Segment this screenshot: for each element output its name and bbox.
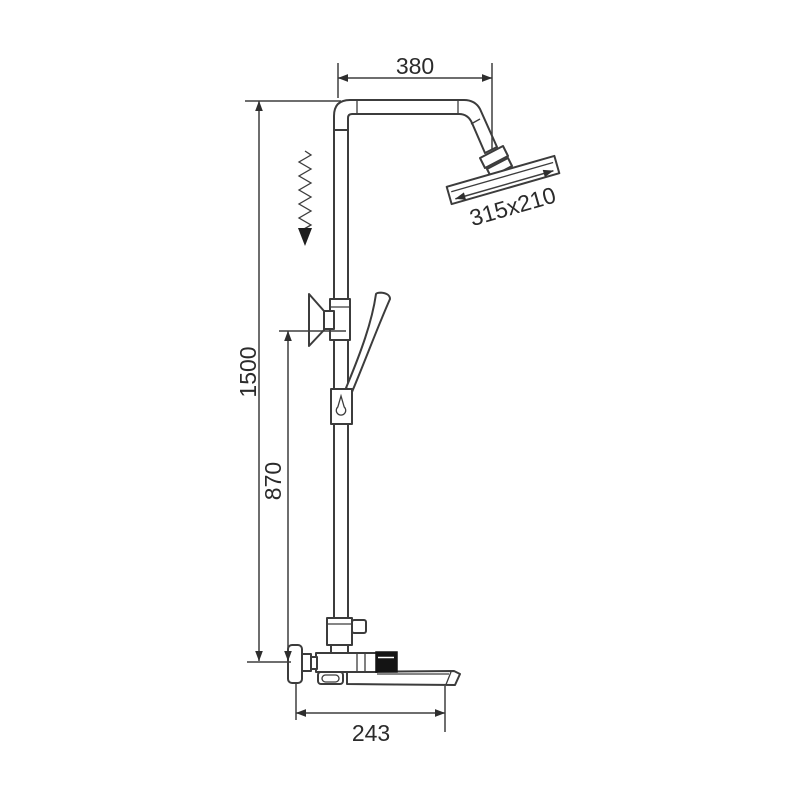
dim-870: 870: [247, 331, 346, 662]
riser-connector-tab: [352, 620, 366, 633]
wall-bracket: [309, 294, 350, 346]
diverter-knob: [376, 652, 397, 672]
spring-zigzag: [299, 151, 311, 229]
riser-pipe: [334, 126, 348, 618]
valve-body: [316, 653, 377, 672]
dim-243: 243: [296, 684, 445, 746]
dim-380-label: 380: [396, 53, 434, 79]
dim-870-label: 870: [260, 462, 286, 500]
down-arrow-icon: [298, 228, 312, 246]
mixer-handle: [288, 645, 302, 683]
slider-body: [331, 389, 352, 424]
dim-1500-label: 1500: [235, 346, 261, 397]
dim-243-label: 243: [352, 720, 390, 746]
top-pipe-and-arm: [334, 100, 497, 153]
shower-set-diagram: 315x210: [0, 0, 800, 800]
handle-stem: [302, 654, 311, 671]
tub-spout: [347, 671, 460, 685]
valve-neck: [331, 645, 348, 653]
riser-connector-block: [327, 618, 352, 645]
mixer-assembly: [288, 618, 460, 685]
drawing-canvas: 315x210: [0, 0, 800, 800]
dimensions: 380 1500 870 243: [235, 53, 492, 746]
slider-holder: [331, 389, 352, 424]
fixture: 315x210: [288, 100, 568, 685]
hand-shower-wand: [346, 293, 390, 392]
bracket-cone: [309, 294, 324, 346]
height-adjust-indicator: [298, 151, 312, 246]
